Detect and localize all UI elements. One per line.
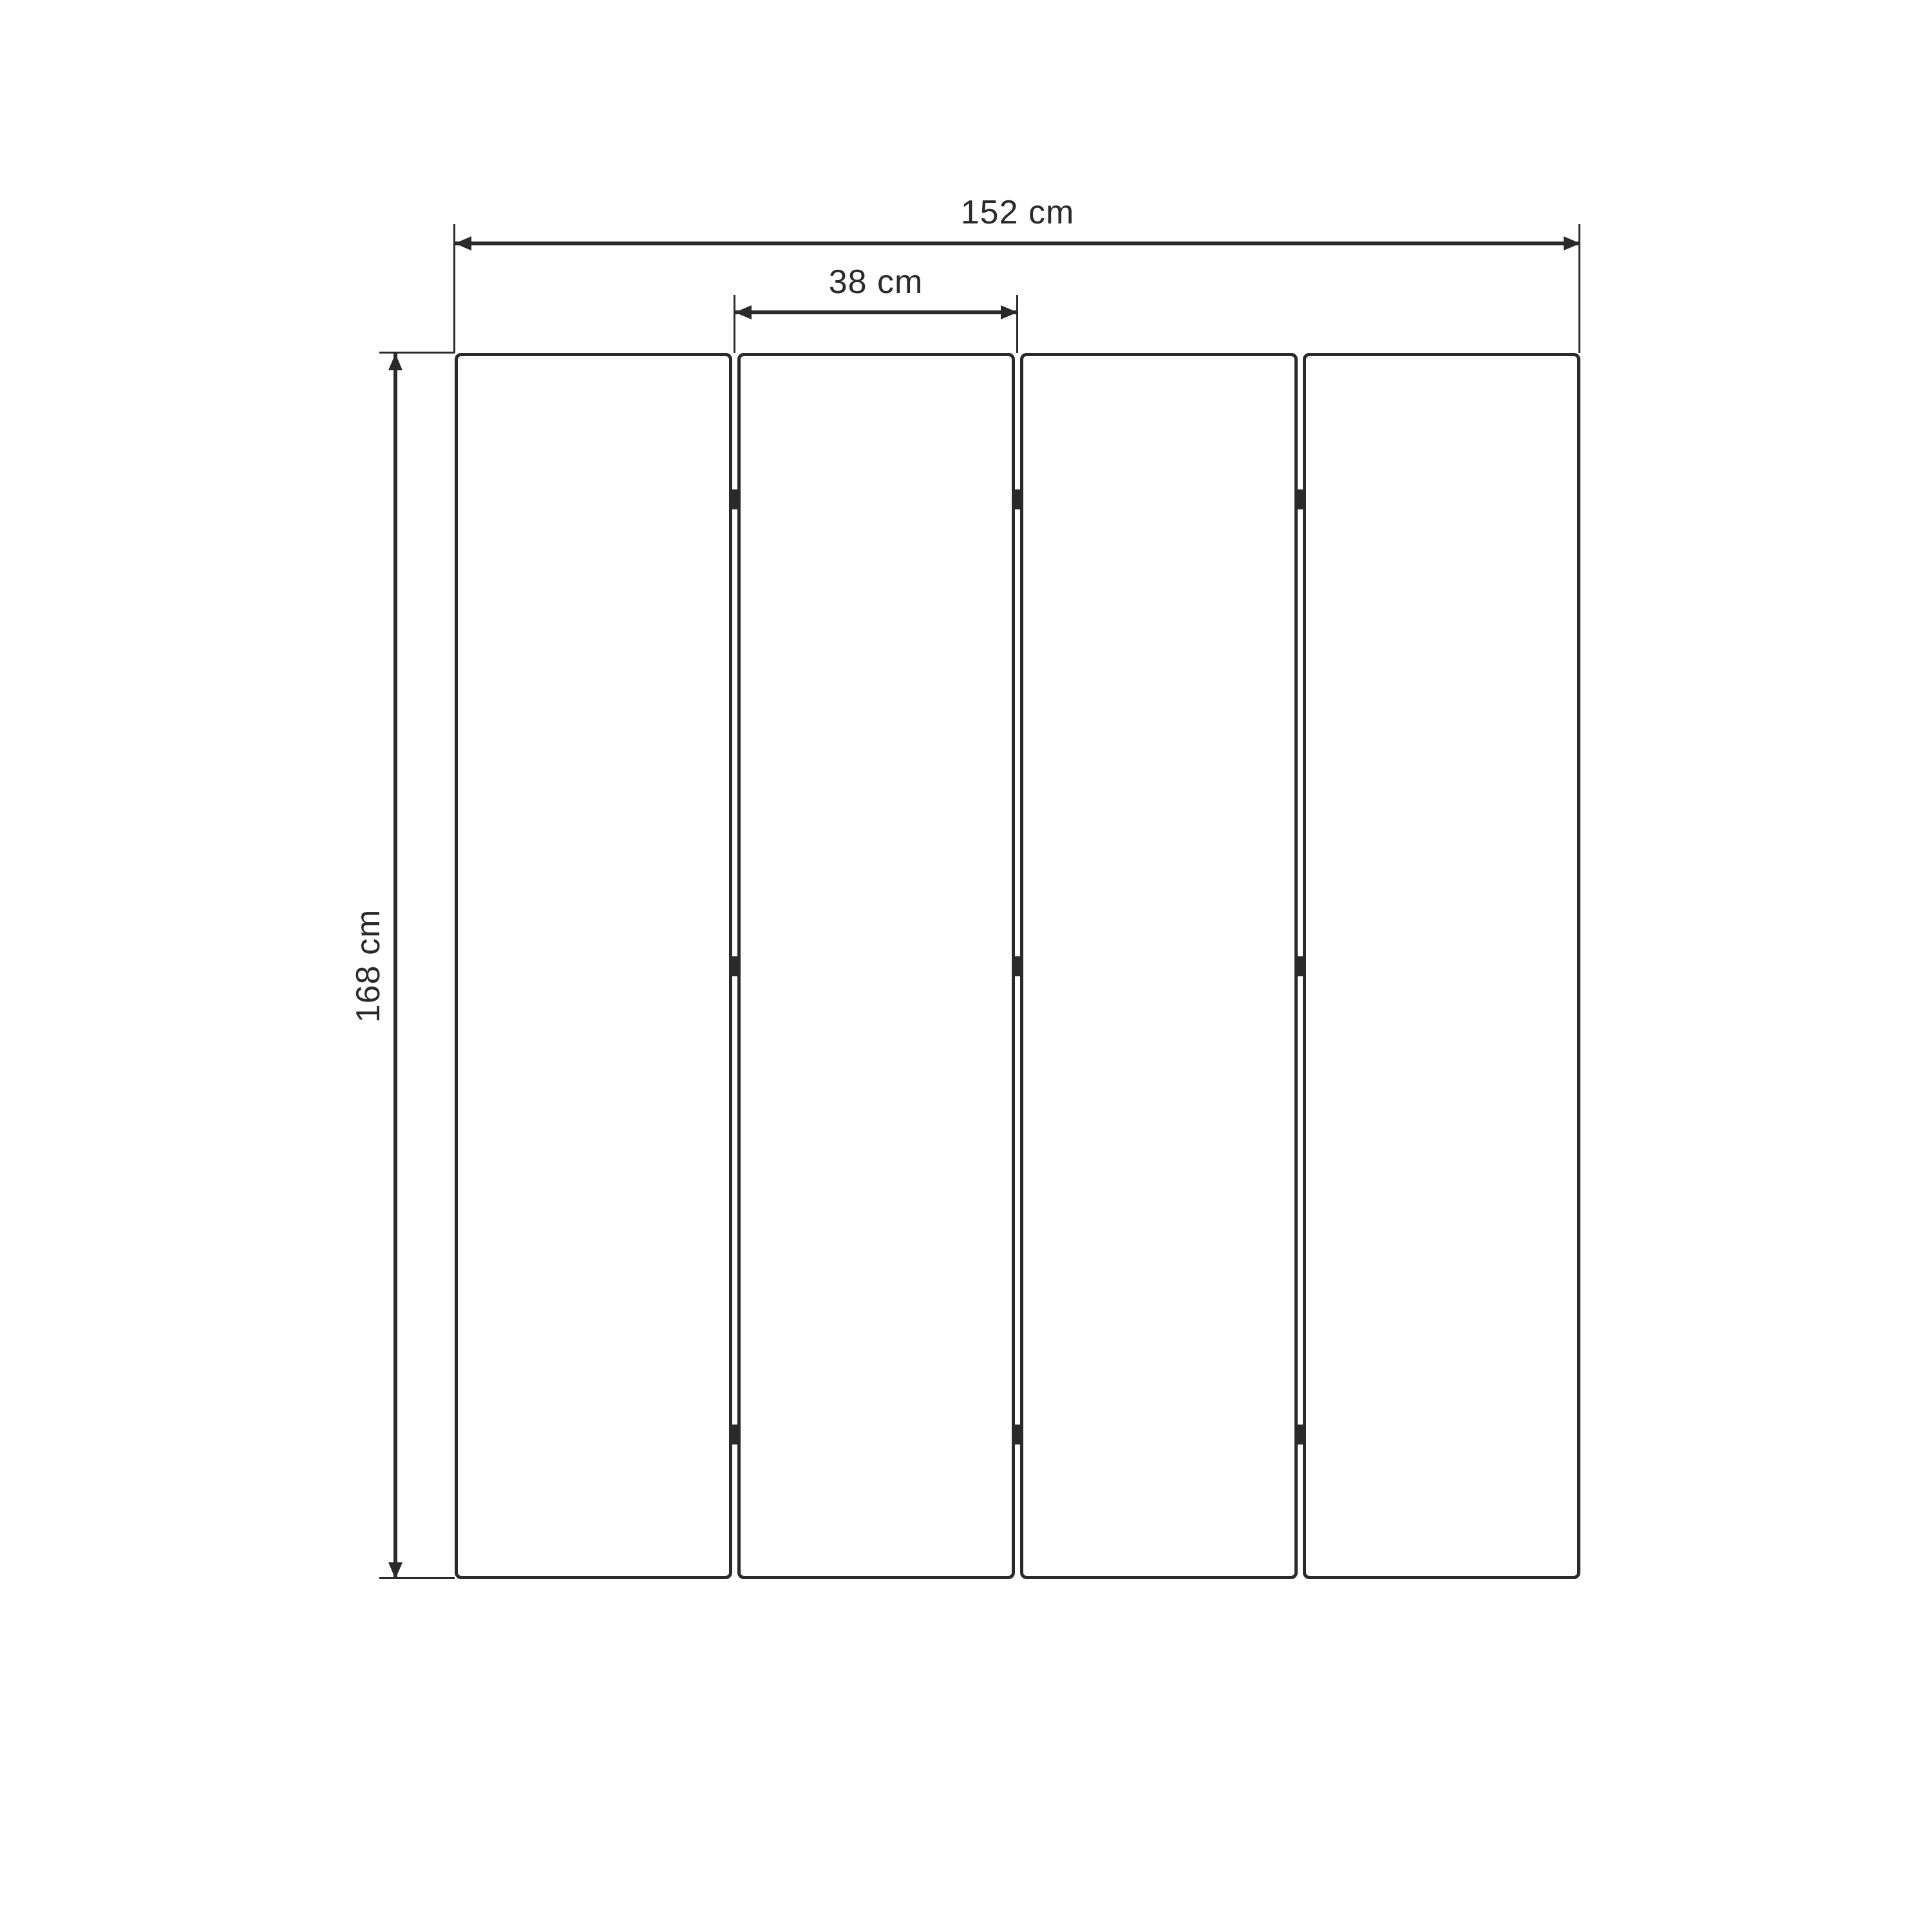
hinge-gap2-middle [1014,956,1022,976]
height-label: 168 cm [349,909,388,1023]
panel-2 [737,353,1015,1579]
extension-line-left [734,295,735,353]
arrowhead-right-icon [1001,305,1018,319]
folding-screen-dimension-diagram: 152 cm 38 cm 168 cm [0,0,1932,1932]
panel-3 [1020,353,1298,1579]
dimension-line [455,241,1580,245]
total-width-label: 152 cm [961,193,1075,232]
hinge-gap2-top [1014,489,1022,509]
panel-4 [1303,353,1580,1579]
dimension-line [735,310,1018,314]
arrowhead-left-icon [735,305,752,319]
hinge-gap1-bottom [731,1425,739,1444]
hinge-gap1-top [731,489,739,509]
arrowhead-down-icon [388,1562,402,1579]
arrowhead-up-icon [388,354,402,370]
arrowhead-right-icon [1564,236,1580,251]
extension-line-right [1016,295,1018,353]
panel-1 [455,353,732,1579]
hinge-gap1-middle [731,956,739,976]
hinge-gap3-top [1296,489,1305,509]
panel-width-label: 38 cm [829,263,923,301]
dimension-line [393,354,397,1579]
hinge-gap3-middle [1296,956,1305,976]
arrowhead-left-icon [455,236,471,251]
hinge-gap3-bottom [1296,1425,1305,1444]
hinge-gap2-bottom [1014,1425,1022,1444]
